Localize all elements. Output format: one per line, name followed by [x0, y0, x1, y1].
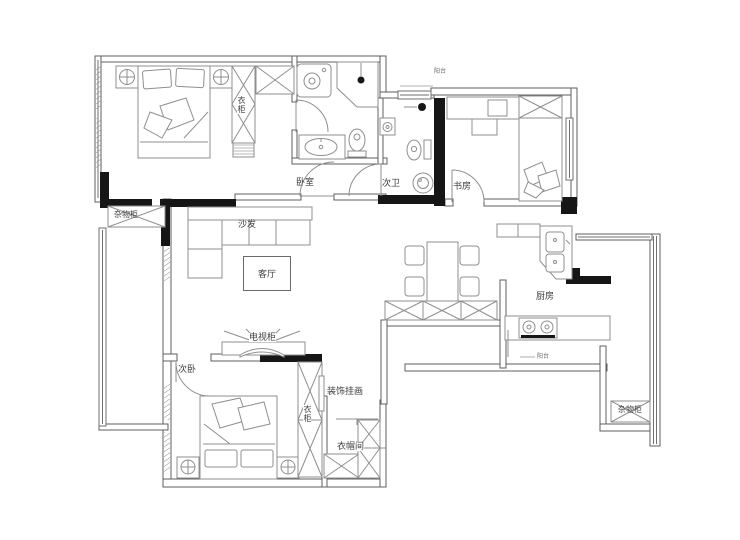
dining-furniture — [385, 242, 497, 320]
pedestal-sink — [413, 173, 433, 193]
label-sofa: 沙发 — [238, 220, 256, 229]
gas-stove — [519, 318, 557, 338]
label-second-bedroom: 次卧 — [178, 365, 196, 374]
nightstand-lamp-right2 — [277, 457, 299, 478]
sink-master — [299, 135, 345, 159]
second-bed — [200, 396, 277, 479]
label-tv-cabinet: 电视柜 — [249, 333, 276, 342]
label-living-room: 客厅 — [243, 256, 291, 291]
kitchen-sink — [540, 226, 572, 279]
label-master-bedroom: 卧室 — [296, 178, 314, 187]
label-second-bathroom: 次卫 — [382, 179, 400, 188]
master-bath-fixtures — [297, 62, 378, 159]
label-storage-left: 杂物柜 — [114, 211, 138, 219]
nightstand-lamp-right — [210, 66, 232, 88]
study-desk — [447, 97, 519, 119]
floor-plan-drawing — [0, 0, 740, 540]
toilet-master — [348, 129, 366, 157]
bath-door-arc — [296, 100, 328, 132]
sideboard — [385, 301, 497, 320]
label-balcony-bottom: 阳台 — [537, 354, 549, 360]
master-bedroom-furniture — [116, 66, 294, 158]
nightstand-lamp-left2 — [177, 457, 199, 478]
wall-basin — [380, 118, 395, 135]
label-storage-right: 杂物柜 — [618, 406, 642, 414]
study-bed — [519, 118, 562, 201]
nightstand-lamp-left — [116, 66, 138, 88]
label-decorative-painting: 装饰挂画 — [327, 387, 363, 396]
second-bedroom-furniture — [177, 362, 386, 479]
toilet-second — [407, 140, 431, 160]
floor-plan-canvas: 卧室 次卫 书房 沙发 客厅 电视柜 厨房 次卧 衣柜 衣柜 装饰挂画 衣帽间 … — [0, 0, 740, 540]
label-balcony-top: 阳台 — [434, 69, 446, 75]
shower-head — [404, 103, 426, 111]
label-study: 书房 — [453, 182, 471, 191]
desk-chair — [472, 119, 497, 135]
study-cabinet — [519, 96, 562, 118]
decor-painting-strip — [319, 376, 324, 411]
second-bath-door-arc — [349, 164, 381, 196]
shower-area — [337, 62, 378, 107]
upper-cabinets — [497, 224, 540, 237]
label-cloakroom: 衣帽间 — [337, 442, 364, 451]
dining-table — [427, 242, 458, 302]
master-bed — [138, 66, 210, 158]
label-wardrobe-second: 衣柜 — [303, 405, 311, 423]
label-wardrobe-master: 衣柜 — [237, 96, 245, 114]
label-kitchen: 厨房 — [536, 292, 554, 301]
top-cabinet — [256, 66, 294, 94]
washing-machine — [297, 64, 331, 97]
